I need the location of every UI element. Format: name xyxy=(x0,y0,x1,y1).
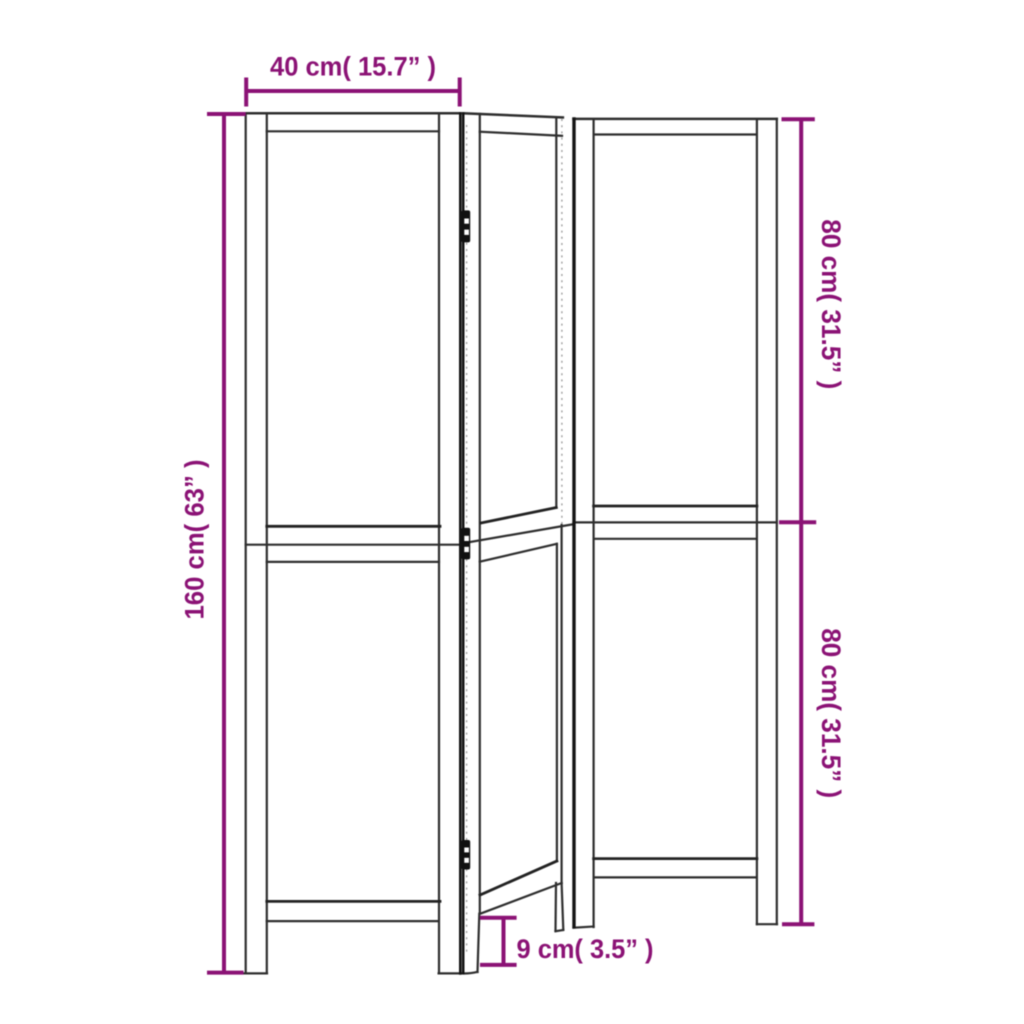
svg-text:80 cm( 31.5” ): 80 cm( 31.5” ) xyxy=(816,219,846,389)
svg-text:40 cm( 15.7” ): 40 cm( 15.7” ) xyxy=(270,52,436,82)
svg-text:80 cm( 31.5” ): 80 cm( 31.5” ) xyxy=(816,628,846,798)
svg-text:9 cm( 3.5” ): 9 cm( 3.5” ) xyxy=(517,934,654,964)
svg-text:160 cm( 63” ): 160 cm( 63” ) xyxy=(180,460,210,620)
